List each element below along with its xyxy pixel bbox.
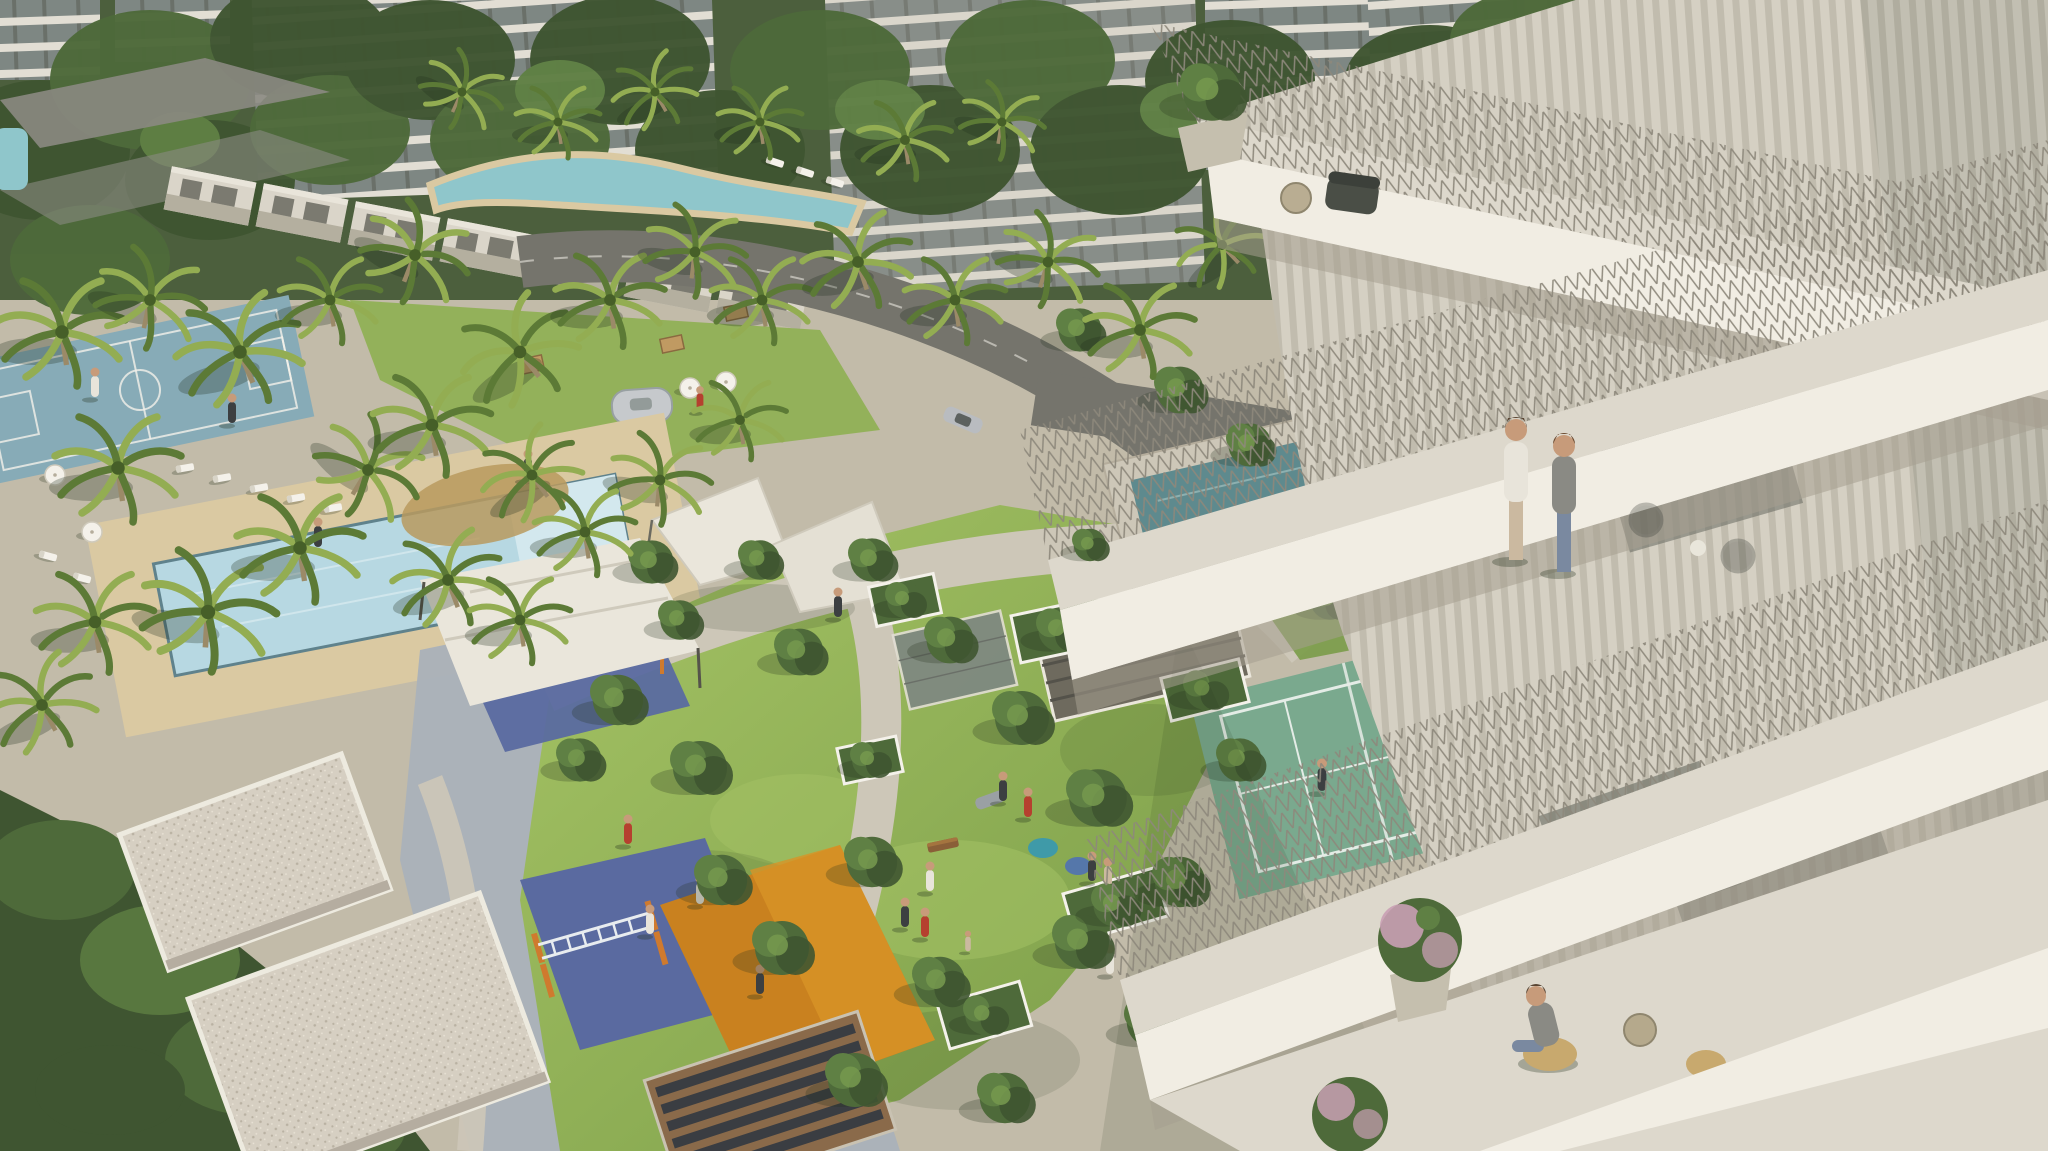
rendering-canvas bbox=[0, 0, 2048, 1151]
cushion bbox=[1690, 540, 1706, 556]
bean-bag bbox=[1065, 857, 1091, 875]
balcony-armchair bbox=[1324, 171, 1381, 216]
side-table bbox=[1281, 183, 1311, 213]
lagoon-pool-edge bbox=[0, 128, 28, 190]
wire-chair bbox=[1630, 504, 1662, 536]
round-table bbox=[1624, 1014, 1656, 1046]
bean-bag bbox=[1028, 838, 1058, 858]
flower-planter bbox=[1312, 1077, 1388, 1151]
wire-chair bbox=[1722, 540, 1754, 572]
aerial-render bbox=[0, 0, 2048, 1151]
